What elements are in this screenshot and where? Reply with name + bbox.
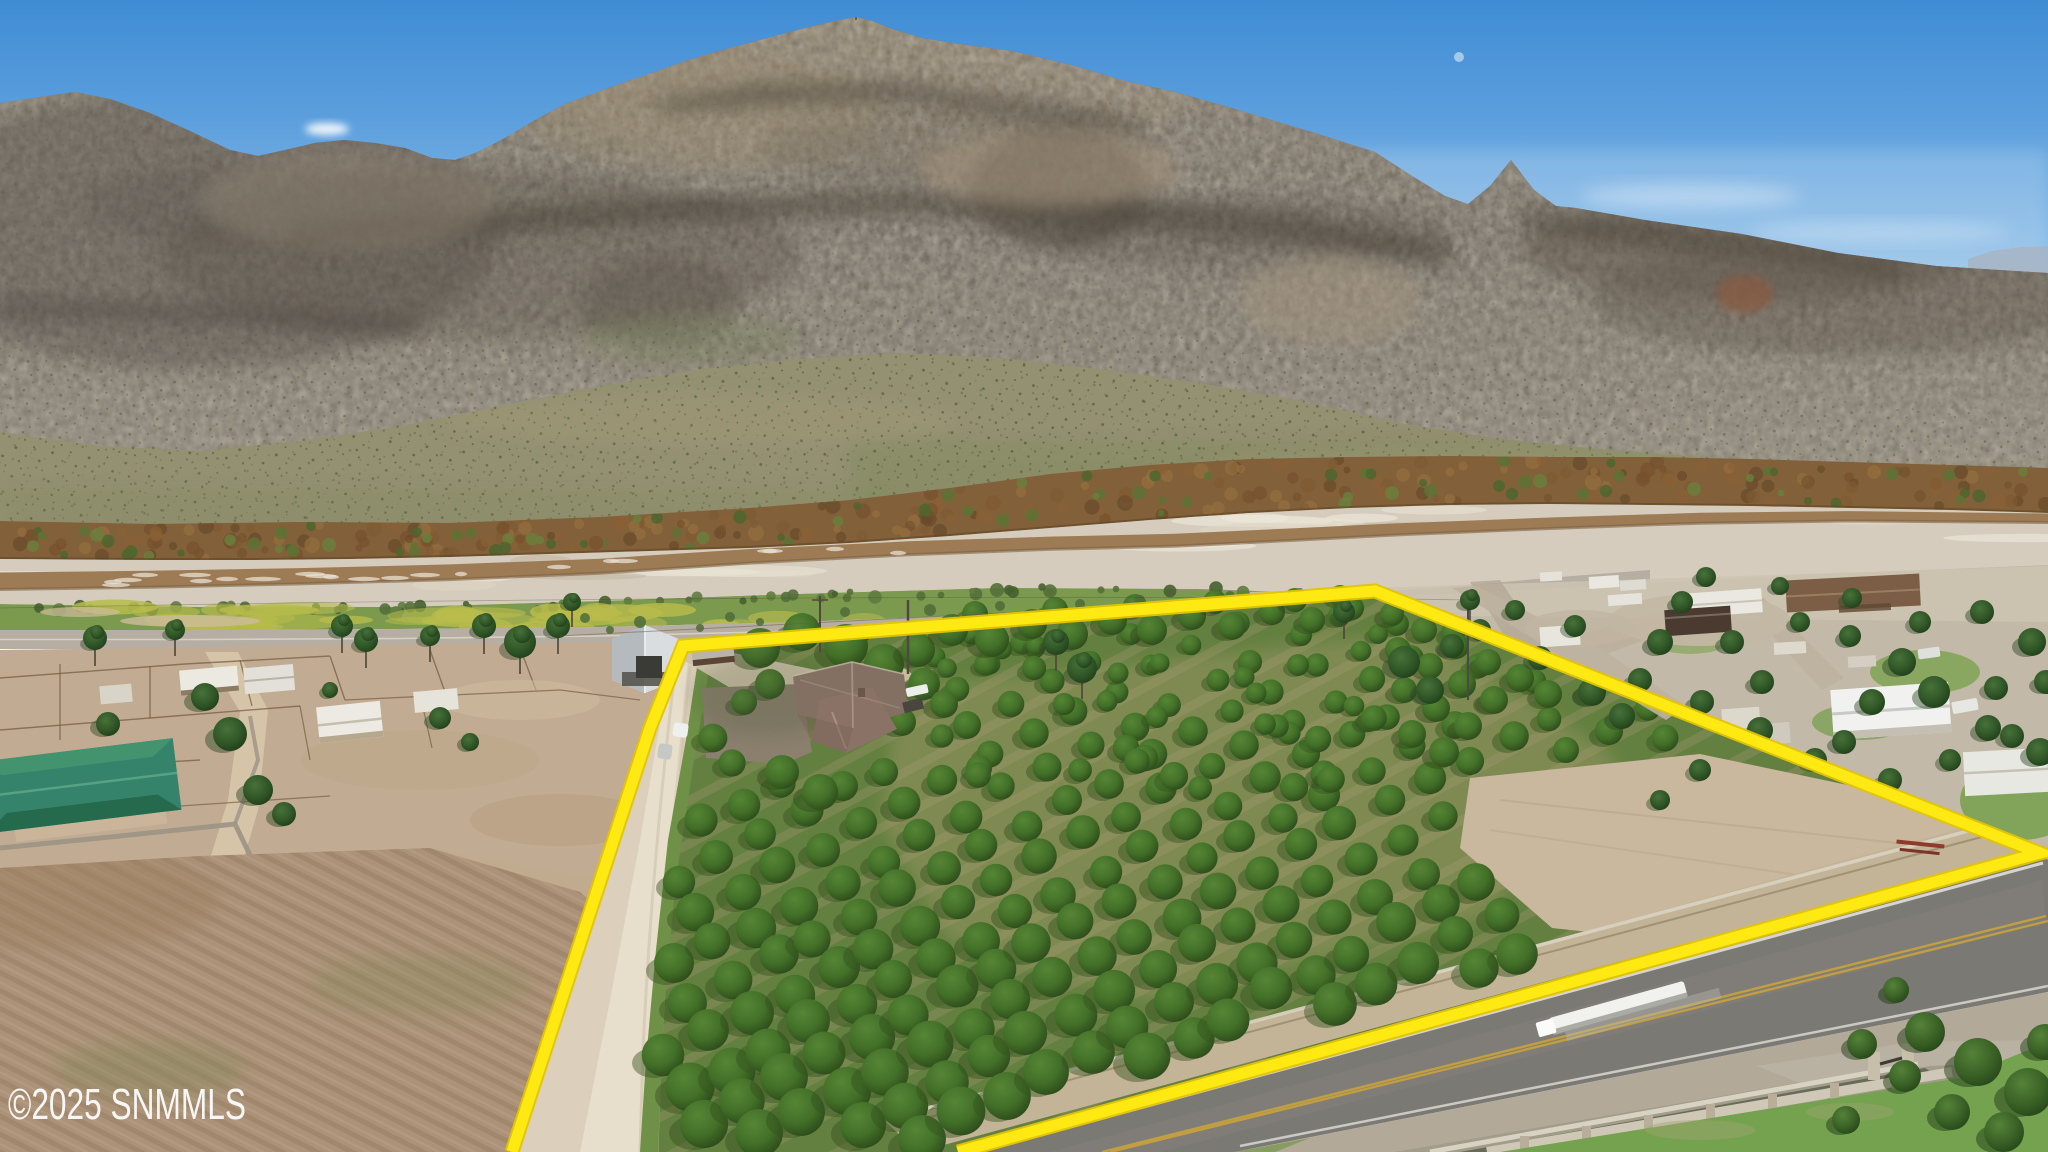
- svg-text:©2025 SNMMLS: ©2025 SNMMLS: [8, 1080, 246, 1129]
